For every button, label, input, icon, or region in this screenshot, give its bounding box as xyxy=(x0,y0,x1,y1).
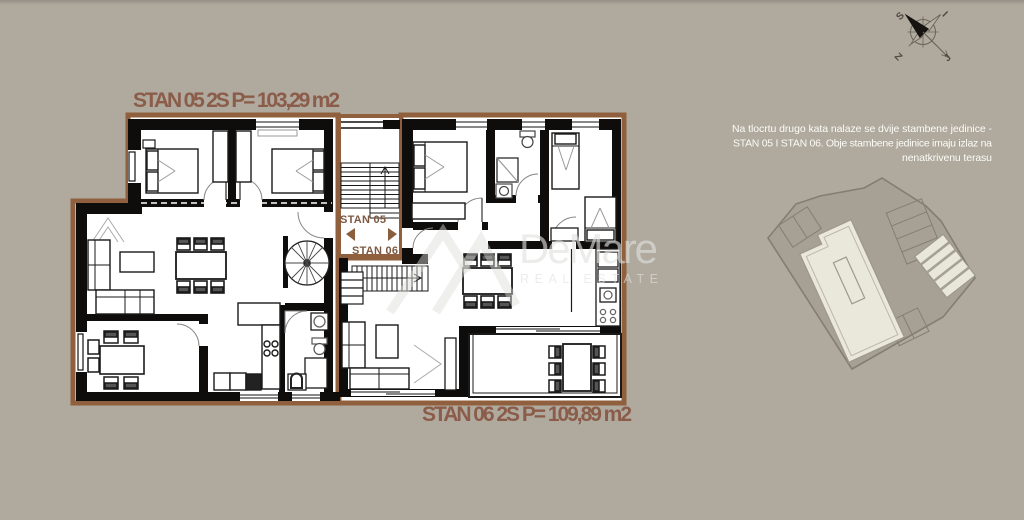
svg-text:STAN 05 2S P= 103,29 m2: STAN 05 2S P= 103,29 m2 xyxy=(133,89,340,112)
svg-text:DeMare: DeMare xyxy=(519,225,658,272)
svg-text:REAL ESTATE: REAL ESTATE xyxy=(520,272,658,286)
svg-text:STAN 06 2S P= 109,89 m2: STAN 06 2S P= 109,89 m2 xyxy=(422,403,632,426)
svg-text:STAN 05 I STAN 06. Obje stambe: STAN 05 I STAN 06. Obje stambene jedinic… xyxy=(733,138,992,150)
svg-text:STAN 06: STAN 06 xyxy=(352,245,398,257)
svg-text:Na tlocrtu drugo kata nalaze s: Na tlocrtu drugo kata nalaze se dvije st… xyxy=(732,123,993,135)
svg-text:nenatkrivenu terasu: nenatkrivenu terasu xyxy=(902,152,992,164)
svg-text:STAN 05: STAN 05 xyxy=(340,214,386,226)
